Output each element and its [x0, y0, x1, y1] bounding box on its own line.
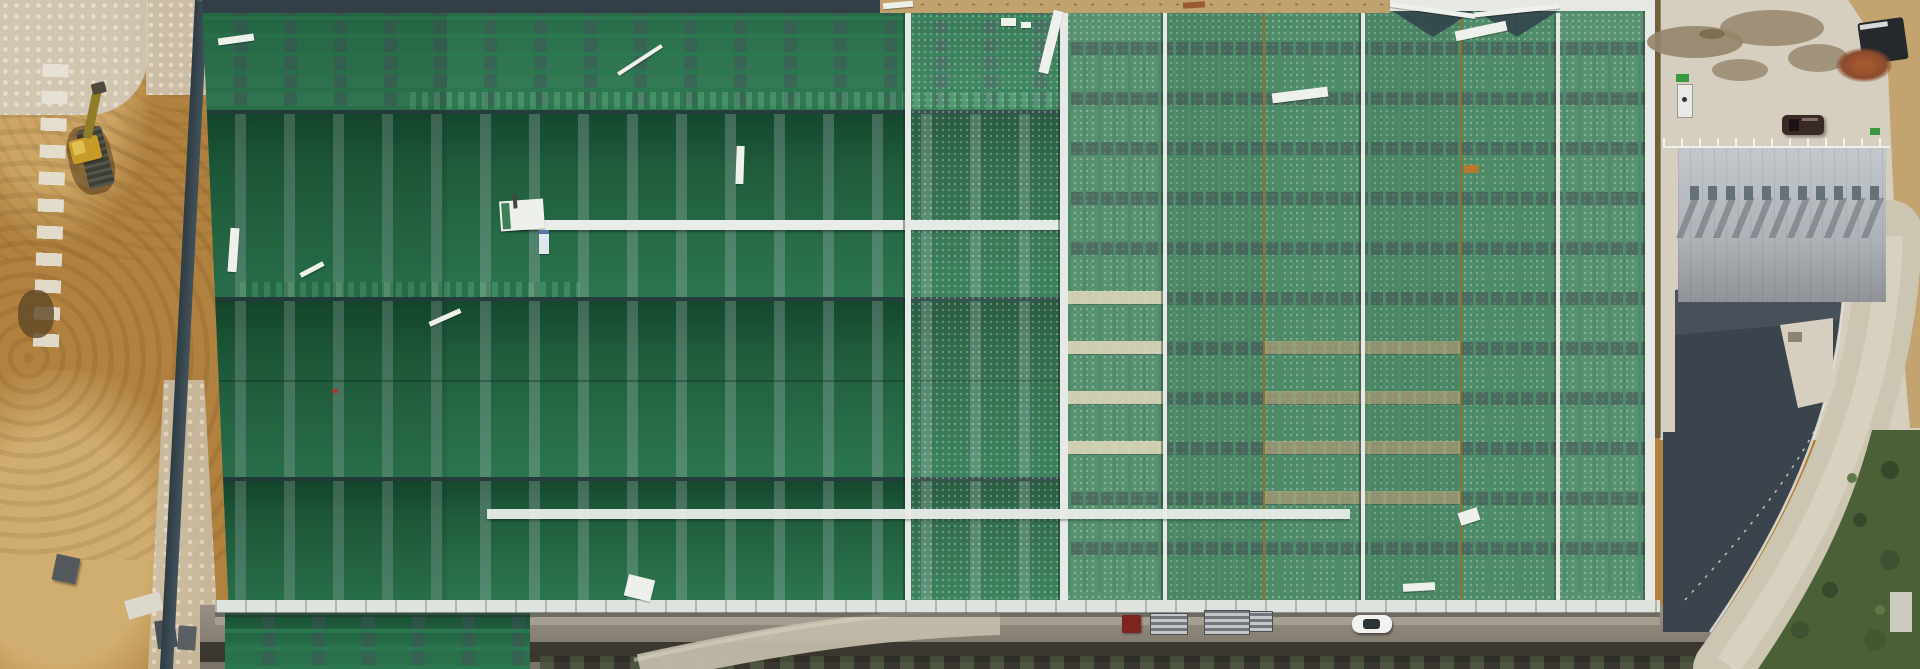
tree-highlight	[1875, 605, 1885, 615]
red-marker	[332, 389, 338, 393]
pallet-stack	[1249, 611, 1273, 632]
excavator-bucket	[91, 81, 107, 95]
blue-tag-sheet	[539, 230, 549, 254]
red-container	[1122, 615, 1141, 633]
parked-suv	[1782, 115, 1824, 135]
ridge-cap-vertical	[1556, 13, 1560, 612]
roof-apron-section	[225, 613, 530, 669]
tree-canopy	[1864, 629, 1886, 651]
lit-skylight-patch	[1068, 291, 1165, 491]
green-bin	[1870, 128, 1880, 135]
warehouse-roof-east	[1060, 0, 1655, 612]
aerial-photo	[0, 0, 1920, 669]
warehouse-roof-west	[197, 0, 1060, 613]
eave-shadow	[215, 612, 1660, 617]
top-ground-sliver	[880, 0, 1390, 13]
green-bin	[1676, 74, 1689, 82]
courtyard-detail	[1788, 332, 1802, 342]
car-windows	[1363, 619, 1380, 629]
white-car	[1352, 615, 1392, 633]
pallet-stack	[1150, 613, 1188, 635]
suv-windshield	[1789, 119, 1799, 131]
cabinet-dot	[1682, 97, 1687, 102]
utility-cabinet	[1677, 84, 1693, 118]
tree-canopy	[1791, 621, 1809, 639]
ridge-cap-vertical	[1060, 0, 1068, 612]
tree-canopy	[1880, 550, 1900, 570]
orange-panel-piece	[1464, 165, 1479, 173]
roof-fascia-top	[197, 0, 883, 13]
rust-pile	[1836, 48, 1892, 82]
concrete-block	[177, 625, 197, 650]
shade-overlay-west	[197, 13, 447, 600]
tree-canopy	[1822, 582, 1838, 598]
ridge-cap-vertical	[1163, 13, 1167, 612]
roof-debris	[1001, 18, 1016, 26]
white-debris-corner	[1890, 592, 1912, 632]
roof-vent-row	[1690, 186, 1886, 200]
roof-debris	[735, 146, 744, 184]
pale-panel-overlay	[910, 13, 1060, 612]
tree-highlight	[1847, 473, 1857, 483]
tree-canopy	[1853, 513, 1867, 527]
roof-debris	[1021, 22, 1031, 28]
tree-canopy	[1881, 461, 1899, 479]
trailer-glint	[1860, 21, 1888, 30]
wet-stain-dark	[1699, 29, 1725, 39]
roof-equipment-cart	[499, 199, 545, 232]
guardrail	[1663, 138, 1890, 148]
wet-stain	[1712, 59, 1768, 81]
roof-debris	[1403, 582, 1435, 592]
suv-roof-glint	[1802, 118, 1818, 121]
wet-stain	[1720, 10, 1824, 46]
cart-detail	[501, 203, 511, 229]
pallet-stack	[1204, 610, 1250, 635]
roof-vent-shadows	[1672, 198, 1892, 238]
ridge-cap-vertical	[1361, 13, 1365, 612]
excavation-pit	[18, 290, 54, 338]
rubble-patch	[0, 0, 148, 115]
roof-seam-orange	[1263, 13, 1265, 612]
ridge-cap-walkway-long	[487, 509, 1350, 519]
right-grounds	[1590, 0, 1920, 669]
